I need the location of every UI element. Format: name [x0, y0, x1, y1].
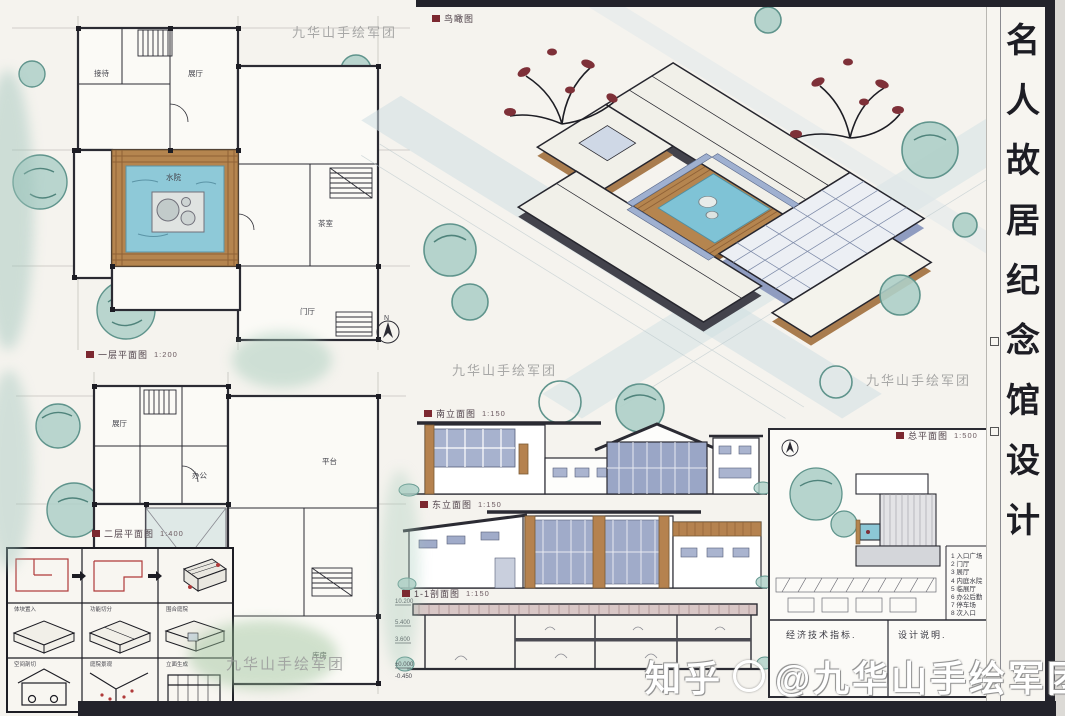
- svg-text:围合庭院: 围合庭院: [166, 605, 189, 613]
- tech-index-note: 经济技术指标.: [786, 628, 857, 641]
- plan1-water-courtyard: [112, 150, 238, 266]
- title-char: 故: [1001, 127, 1045, 187]
- elevations-section: 10.200 5.400 3.600 ±0.000 -0.450: [395, 408, 773, 680]
- zhihu-logo-icon: [733, 660, 765, 692]
- elevation-2: [398, 512, 774, 590]
- legend-item: 4 内庭水院: [951, 578, 1011, 586]
- title-char: 名: [1001, 7, 1045, 67]
- design-note: 设计说明.: [898, 628, 947, 641]
- title-char: 人: [1001, 67, 1045, 127]
- legend-item: 8 次入口: [951, 610, 1011, 618]
- svg-text:体块置入: 体块置入: [14, 605, 37, 613]
- svg-text:展厅: 展厅: [112, 419, 127, 428]
- svg-text:水院: 水院: [166, 172, 181, 182]
- svg-text:空间剖切: 空间剖切: [14, 660, 37, 668]
- legend-item: 5 临展厅: [951, 586, 1011, 594]
- zhihu-label: 知乎: [645, 650, 723, 702]
- brand-watermark: 九华山手绘军团: [452, 360, 557, 379]
- floor-plan-1: 接待 展厅 水院 茶室 门厅 N: [10, 14, 412, 352]
- frame-border-top: [416, 0, 1048, 7]
- legend-item: 1 入口广场: [951, 553, 1011, 561]
- bird-eye-caption: 鸟瞰图: [432, 12, 480, 25]
- svg-text:展厅: 展厅: [188, 69, 203, 78]
- svg-text:办公: 办公: [192, 470, 207, 480]
- caption-square-icon: [432, 15, 440, 22]
- svg-text:庭院景观: 庭院景观: [90, 660, 113, 668]
- caption-square-icon: [92, 530, 100, 537]
- caption-square-icon: [86, 351, 94, 358]
- elevation-1: [399, 423, 772, 496]
- svg-text:门厅: 门厅: [300, 307, 315, 316]
- title-char: 居: [1001, 187, 1045, 247]
- frame-border-bottom: [78, 701, 1056, 716]
- elevation2-caption: 东立面图1:150: [420, 498, 502, 511]
- site-plan-caption: 总平面图1:500: [896, 429, 978, 442]
- watercolor-wash: [232, 332, 332, 388]
- svg-text:茶室: 茶室: [318, 218, 333, 228]
- plan1-caption: 一层平面图1:200: [86, 348, 178, 361]
- svg-text:立面生成: 立面生成: [166, 660, 189, 668]
- zhihu-watermark: 知乎 @九华山手绘军团9哥: [645, 650, 1065, 702]
- photo-edge: [1055, 0, 1065, 716]
- zhihu-account: @九华山手绘军团9哥: [775, 650, 1065, 702]
- caption-square-icon: [420, 501, 428, 508]
- svg-text:N: N: [384, 315, 389, 322]
- svg-text:平台: 平台: [322, 456, 337, 466]
- caption-square-icon: [424, 410, 432, 417]
- title-char: 纪: [1001, 247, 1045, 307]
- presentation-board: 接待 展厅 水院 茶室 门厅 N 一层平面图1:200: [0, 0, 1065, 716]
- brand-watermark: 九华山手绘军团: [292, 22, 397, 41]
- section-caption: 1-1剖面图1:150: [402, 587, 490, 600]
- legend-item: 6 办公后勤: [951, 594, 1011, 602]
- caption-square-icon: [402, 590, 410, 597]
- svg-text:接待: 接待: [94, 68, 109, 78]
- frame-border-right: [1044, 0, 1055, 716]
- elevation1-caption: 南立面图1:150: [424, 407, 506, 420]
- title-char: 念: [1001, 307, 1045, 367]
- watercolor-wash: [380, 470, 420, 670]
- title-char: 设: [1001, 427, 1045, 487]
- svg-text:功能切分: 功能切分: [90, 605, 113, 613]
- analysis-diagrams: 体块置入 功能切分 围合庭院 空间剖切 庭院景观 立面生成: [6, 547, 234, 713]
- caption-square-icon: [896, 432, 904, 439]
- brand-watermark: 九华山手绘军团: [866, 370, 971, 389]
- title-char: 馆: [1001, 367, 1045, 427]
- plan2-caption: 二层平面图1:400: [92, 527, 184, 540]
- site-plan-legend: 1 入口广场 2 门厅 3 展厅 4 内庭水院 5 临展厅 6 办公后勤 7 停…: [951, 553, 1011, 619]
- title-char: 计: [1001, 487, 1045, 547]
- legend-item: 3 展厅: [951, 569, 1011, 577]
- brand-watermark: 九华山手绘军团: [226, 653, 345, 674]
- svg-text:-0.450: -0.450: [395, 674, 413, 680]
